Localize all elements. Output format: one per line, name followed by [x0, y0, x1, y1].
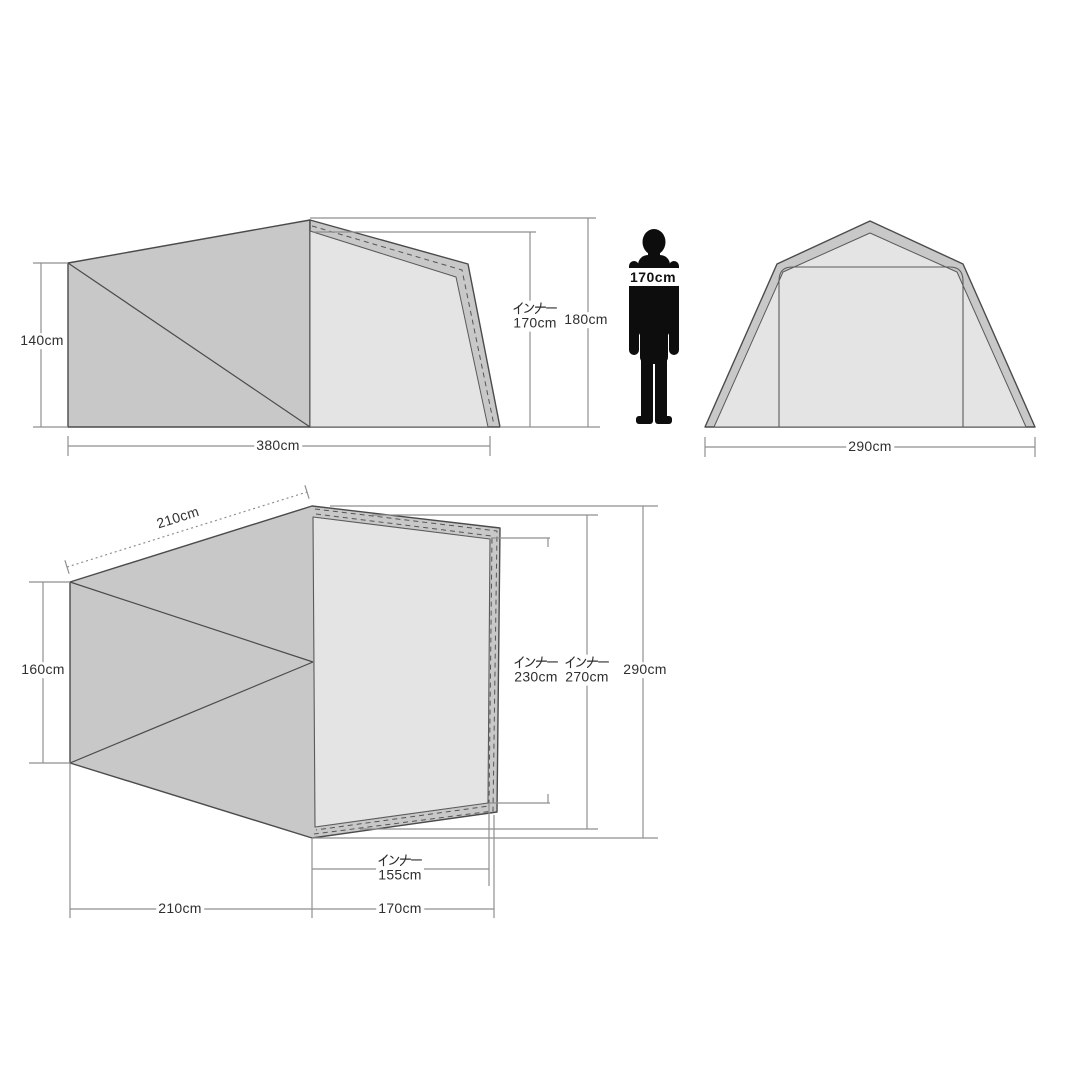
front-width-label: 290cm: [846, 439, 894, 455]
top-total-width-label: 290cm: [621, 662, 669, 678]
side-inner-panel: [310, 231, 488, 427]
person-right-foot: [655, 416, 672, 424]
inner-jp-text: [513, 301, 557, 315]
top-vestibule-length-label: 210cm: [156, 901, 204, 917]
top-inner-width-front-label: 230cm: [512, 655, 560, 686]
inner-jp-text: [565, 655, 609, 669]
side-total-height-label: 180cm: [562, 312, 610, 328]
side-length-label: 380cm: [254, 438, 302, 454]
front-inner-panel: [714, 233, 1026, 427]
front-view: [705, 221, 1035, 427]
top-inner-section-length-label: 170cm: [376, 901, 424, 917]
person-silhouette: [629, 229, 679, 424]
side-view: [68, 220, 500, 427]
side-inner-height-label: 170cm: [511, 301, 559, 332]
person-height-tag: 170cm: [626, 268, 680, 286]
tent-dimension-diagram: 140cm 380cm 170cm 180cm 170cm 290cm 210c…: [0, 0, 1080, 1080]
inner-length-value: 155cm: [378, 868, 422, 884]
top-rear-width-label: 160cm: [19, 662, 67, 678]
inner-jp-text: [378, 853, 422, 867]
person-left-foot: [636, 416, 653, 424]
diagram-art: [0, 0, 1080, 1080]
inner-height-value: 170cm: [513, 316, 557, 332]
inner-jp-text: [514, 655, 558, 669]
top-view: [70, 506, 500, 838]
side-vestibule-panel: [68, 220, 310, 427]
top-inner-panel: [313, 517, 490, 827]
person-left-leg: [641, 350, 653, 424]
inner-width-front-value: 230cm: [514, 670, 558, 686]
top-inner-width-rear-label: 270cm: [563, 655, 611, 686]
side-height-label: 140cm: [18, 333, 66, 349]
top-inner-length-label: 155cm: [376, 853, 424, 884]
inner-width-rear-value: 270cm: [565, 670, 609, 686]
person-right-leg: [655, 350, 667, 424]
